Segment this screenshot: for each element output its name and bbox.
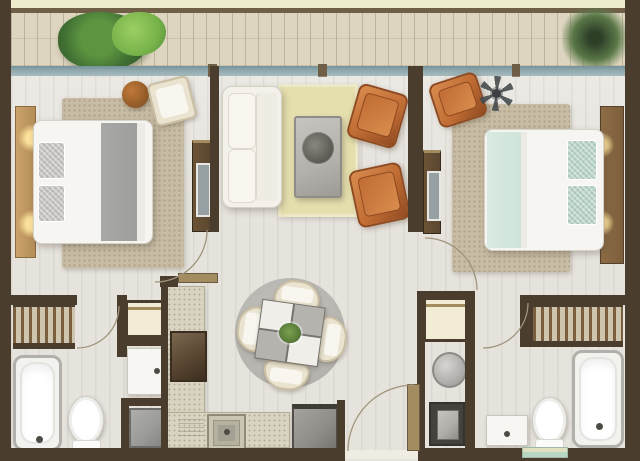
armchair-seat <box>357 171 402 218</box>
cabinet-shelf <box>128 307 162 310</box>
living-room-sofa <box>222 86 282 208</box>
table-centerpiece <box>302 132 334 164</box>
refrigerator <box>292 404 338 450</box>
wall-bath-right-top <box>520 295 627 305</box>
cabinet-shelf <box>426 304 466 307</box>
bedroom-left-bed <box>33 120 153 244</box>
sofa-back-cushion <box>228 93 256 149</box>
faucet-icon <box>224 429 230 435</box>
wall-under-cabinet-left <box>117 337 165 346</box>
wall-utility-right-right <box>465 291 475 448</box>
coffee-table <box>294 116 342 198</box>
wall-utility-left-side <box>117 295 127 357</box>
bed-fold <box>137 123 145 241</box>
wall-fridge-side <box>337 400 345 448</box>
kitchen-sink <box>207 414 246 452</box>
chair-seat <box>155 83 189 119</box>
chair-seat <box>281 285 315 303</box>
bathroom-right-closet <box>533 301 623 347</box>
bed-pillow-mint <box>567 185 597 225</box>
bedroom-left-tv-cabinet <box>192 140 212 232</box>
tub-interior <box>20 362 55 444</box>
wall-bedroom-left-living <box>210 66 219 232</box>
bed-pillow <box>38 185 65 222</box>
chair-seat <box>269 367 303 385</box>
sofa-back-cushion <box>228 149 256 203</box>
tub-faucet-icon <box>36 436 43 443</box>
storage-cabinet-right <box>423 296 469 342</box>
tub-faucet-icon <box>596 423 603 430</box>
wall-utility-right-top <box>417 291 473 300</box>
washer-left <box>129 408 165 448</box>
wall-living-bedroom-right <box>408 66 423 232</box>
entry-door-leaf <box>407 384 420 451</box>
appliance-unit <box>429 402 465 446</box>
faucet-icon <box>154 368 160 374</box>
ceiling-fan-icon <box>479 76 514 111</box>
counter-fine-print <box>178 418 204 436</box>
bath-mat <box>522 447 568 458</box>
storage-cabinet-left <box>125 300 165 338</box>
bed-blanket-mint <box>487 132 521 248</box>
sofa-seat <box>256 93 277 201</box>
wall-bath-right-closet-side <box>520 295 533 347</box>
wall-exterior-right <box>625 0 640 461</box>
bedroom-right-bed <box>484 129 604 251</box>
tv-icon <box>196 163 211 217</box>
cooktop <box>170 331 207 382</box>
floor-plan-scene <box>0 0 640 461</box>
bathroom-left-closet <box>13 301 75 349</box>
bed-blanket <box>101 123 137 241</box>
dining-group <box>228 271 352 395</box>
armchair-seat <box>437 80 478 117</box>
kitchen-upper-ledge <box>178 273 218 283</box>
entry-threshold <box>345 450 418 459</box>
wall-exterior-bottom-left <box>0 448 345 461</box>
fan-hub <box>492 89 501 98</box>
chair-seat <box>323 323 341 357</box>
round-washer <box>432 352 467 388</box>
bedroom-left-pouf <box>122 81 149 108</box>
wall-bath-left-top <box>11 295 77 305</box>
bathtub-right <box>572 350 624 448</box>
wall-exterior-left <box>0 0 11 461</box>
balcony-plant-right-icon <box>562 8 628 68</box>
appliance-door <box>437 410 459 440</box>
tv-icon <box>427 171 441 221</box>
bedroom-right-tv-cabinet <box>423 150 441 234</box>
vanity-sink-right <box>486 415 528 446</box>
toilet-left-bowl <box>68 396 104 444</box>
toilet-right-bowl <box>532 397 567 444</box>
bathtub-left <box>13 355 62 451</box>
armchair-seat <box>356 92 400 138</box>
wall-kitchen-stub <box>160 276 178 287</box>
bed-fold <box>521 132 527 248</box>
faucet-icon <box>504 431 510 437</box>
wall-kitchen-left <box>161 282 168 448</box>
bed-pillow <box>38 142 65 179</box>
bed-pillow-mint <box>567 140 597 180</box>
